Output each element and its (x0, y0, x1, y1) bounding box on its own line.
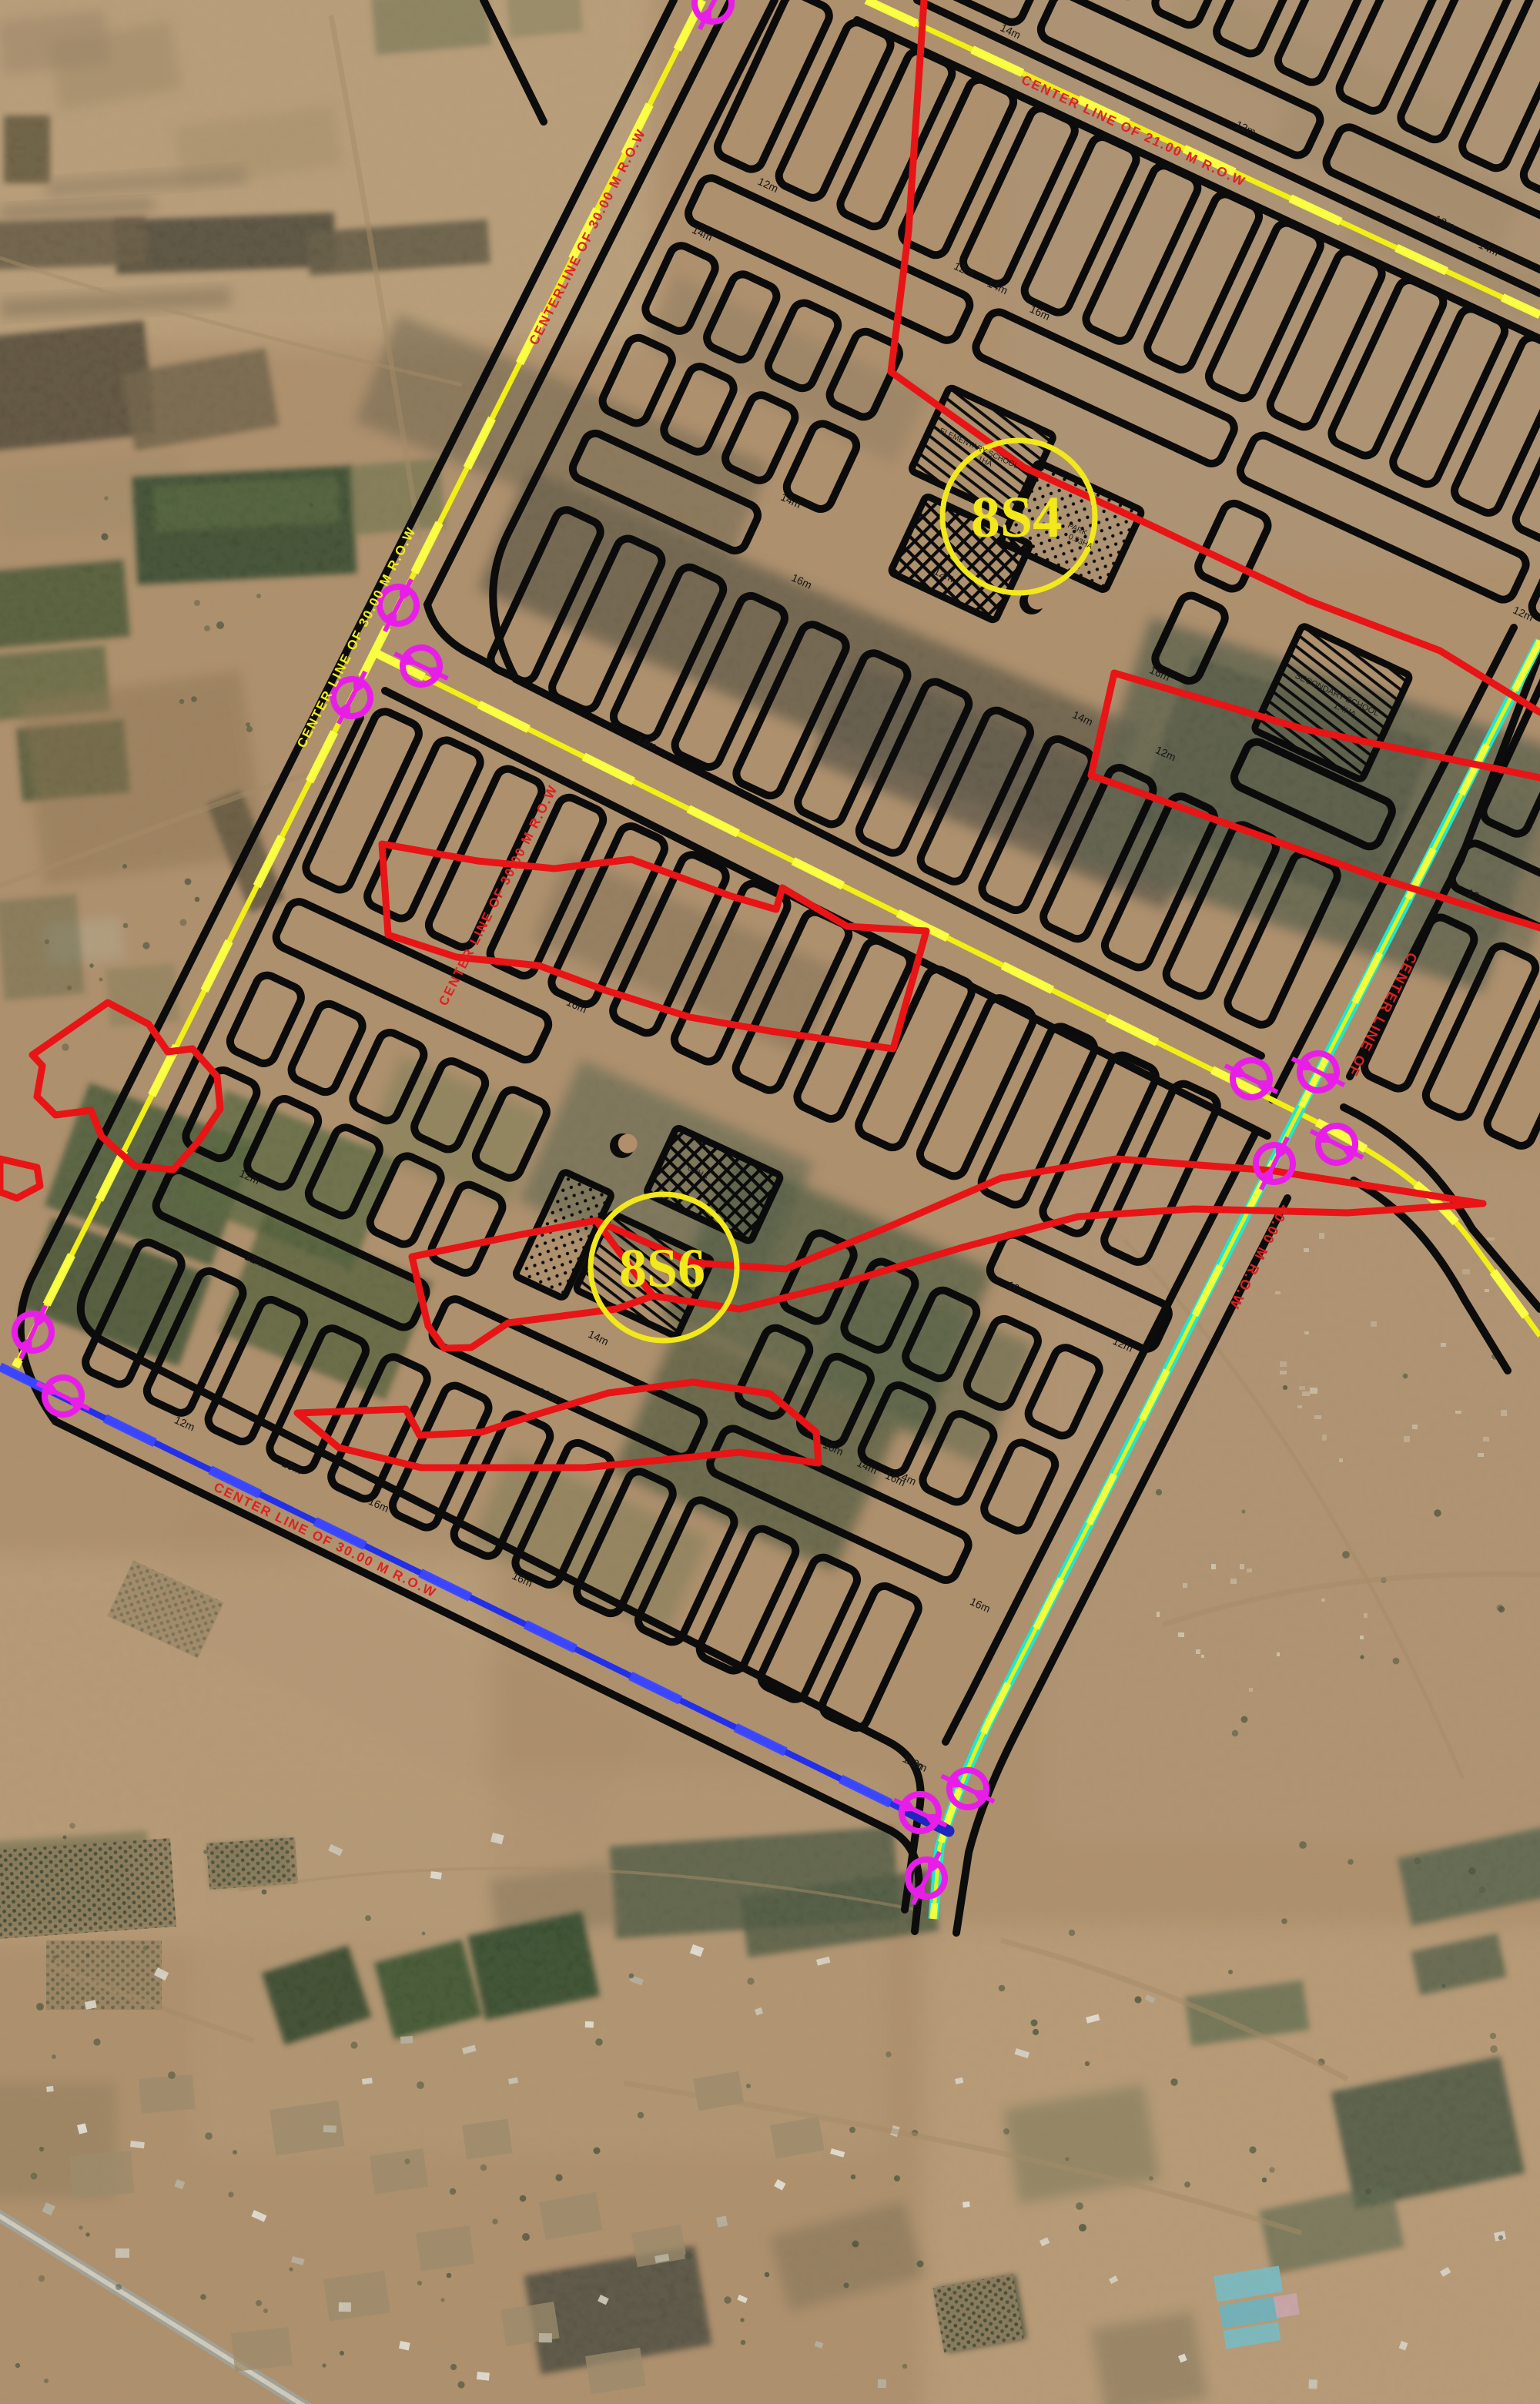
svg-text:8S6: 8S6 (619, 1237, 705, 1299)
svg-text:8S4: 8S4 (971, 485, 1062, 550)
